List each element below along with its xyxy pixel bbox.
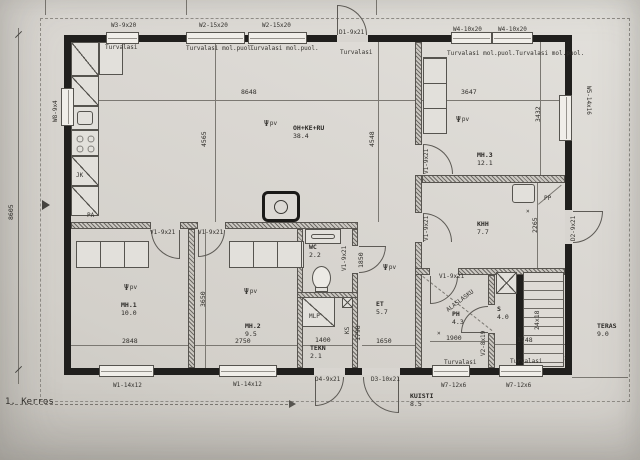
room-area: 4.3 (452, 318, 464, 326)
room-name: TEKN (310, 344, 326, 352)
smoke-detector-label: pv (130, 285, 137, 291)
room-name: KHH (477, 220, 489, 228)
safety-glass-label: Turvalasi (444, 359, 477, 366)
room-label: TERAS9.0 (597, 322, 617, 338)
washer-label: PP (544, 195, 551, 202)
room-area: 12.1 (477, 159, 493, 167)
floor-plan-photo: 1. Kerros OH+KE+RU38.4MH.312.1KHH7.7MH.1… (0, 0, 640, 460)
partition-wall (415, 242, 422, 368)
room-name: OH+KE+RU (293, 124, 324, 132)
room-label: WC2.2 (309, 243, 321, 259)
stove-cooktop (71, 130, 99, 156)
smoke-detector-icon: Ψ (456, 116, 461, 123)
safety-glass-label: Turvalasi mol.puol. (250, 45, 319, 52)
partition-wall (188, 229, 195, 368)
opening-label: W5-14x16 (585, 86, 592, 115)
opening-label: W4-10x20 (453, 26, 482, 33)
window-w8 (61, 88, 74, 126)
opening-label: W2-15x20 (262, 22, 291, 29)
exterior-wall-left (64, 35, 71, 375)
freezer (71, 186, 99, 216)
opening-label: V1-9x21 (439, 273, 464, 280)
room-label: ET5.7 (376, 300, 388, 316)
window-w7 (499, 365, 543, 377)
smoke-detector-marker: Ψpv (124, 284, 137, 291)
fridge (71, 156, 99, 186)
opening-label: V1-9x21 (423, 216, 430, 241)
opening-label: D1-9x21 (339, 29, 364, 36)
window-w4 (492, 32, 533, 44)
dim-line (378, 42, 379, 222)
kitchen-sink (71, 106, 99, 130)
entry-arrow (289, 400, 296, 408)
fireplace (262, 191, 300, 222)
opening-label: W7-12x6 (506, 382, 531, 389)
smoke-detector-label: pv (462, 117, 469, 123)
safety-glass-label: Turvalasi (105, 44, 138, 51)
door-opening (362, 368, 400, 375)
safety-glass-label: Turvalasi mol.puol. (186, 45, 255, 52)
smoke-detector-icon: Ψ (244, 288, 249, 295)
room-label: TEKN2.1 (310, 344, 326, 360)
smoke-detector-marker: Ψpv (456, 116, 469, 123)
smoke-detector-label: pv (270, 121, 277, 127)
smoke-detector-label: pv (389, 265, 396, 271)
room-label: S4.0 (497, 305, 509, 321)
opening-label: W4-10x20 (498, 26, 527, 33)
dimension-label: 1400 (315, 337, 331, 344)
staircase (523, 272, 564, 367)
dimension-label: 3432 (535, 106, 542, 122)
wardrobe-mh3 (423, 57, 447, 134)
dimension-label: 8648 (241, 89, 257, 96)
door-opening (314, 368, 345, 375)
window-w3 (106, 32, 139, 44)
dimension-label: 4548 (369, 131, 376, 147)
door-opening (337, 35, 368, 42)
exterior-wall-right (565, 35, 572, 375)
room-name: MH.3 (477, 151, 493, 159)
room-area: 2.1 (310, 352, 326, 360)
room-label: KUISTI8.5 (410, 392, 433, 408)
dimension-label: 1900 (446, 335, 462, 342)
room-label: MH.110.0 (121, 301, 137, 317)
partition-wall (71, 222, 151, 229)
dimension-label: 8605 (8, 204, 15, 220)
dimension-label: 2265 (532, 217, 539, 233)
partition-wall (352, 229, 358, 246)
safety-glass-label: Turvalasi mol.puol.Turvalasi mol.puol. (447, 50, 584, 57)
ceiling-valve-symbol: × (437, 330, 441, 337)
dimension-label: 1650 (376, 338, 392, 345)
sauna-stove (496, 272, 517, 294)
wardrobe-mh1 (76, 241, 149, 268)
safety-glass-label: Turvalasi (340, 49, 373, 56)
washing-machine (512, 184, 535, 203)
opening-label: D3-10x21 (371, 376, 400, 383)
room-area: 4.0 (497, 313, 509, 321)
ceiling-valve-symbol: × (526, 208, 530, 215)
room-label: PH4.3 (452, 310, 464, 326)
dimension-label: 1748 (517, 337, 533, 344)
dimension-label: 24x18 (534, 310, 541, 330)
room-name: ET (376, 300, 388, 308)
room-name: WC (309, 243, 321, 251)
dimension-label: 3647 (461, 89, 477, 96)
dimension-label: 3650 (200, 291, 207, 307)
opening-label: V1-9x21 (423, 149, 430, 174)
floor-title: 1. Kerros (5, 397, 54, 407)
partition-wall (225, 222, 358, 229)
smoke-detector-marker: Ψpv (244, 288, 257, 295)
partition-wall (415, 268, 430, 275)
opening-label: W2-15x20 (199, 22, 228, 29)
floor-plan: 1. Kerros OH+KE+RU38.4MH.312.1KHH7.7MH.1… (0, 0, 640, 460)
room-name: MH.1 (121, 301, 137, 309)
room-area: 7.7 (477, 228, 489, 236)
window-w1 (99, 365, 154, 377)
opening-label: V1-9x21 (198, 229, 223, 236)
room-name: TERAS (597, 322, 617, 330)
window-w4 (451, 32, 492, 44)
boiler-label: MLP (309, 313, 320, 320)
partition-wall (488, 275, 495, 305)
room-name: KUISTI (410, 392, 433, 400)
safety-glass-label: Turvalasi (510, 358, 543, 365)
freezer-label: PA (87, 212, 94, 219)
room-label: OH+KE+RU38.4 (293, 124, 324, 140)
room-name: MH.2 (245, 322, 261, 330)
terrace-edge (572, 377, 628, 378)
opening-label: V2-8x19 (480, 331, 487, 356)
partition-wall (352, 273, 358, 368)
room-area: 9.0 (597, 330, 617, 338)
smoke-detector-label: pv (250, 289, 257, 295)
smoke-detector-icon: Ψ (383, 264, 388, 271)
extension-line (376, 0, 377, 15)
smoke-detector-icon: Ψ (264, 120, 269, 127)
water-heater (302, 297, 335, 327)
opening-label: W3-9x20 (111, 22, 136, 29)
dim-line (215, 42, 216, 222)
drying-cabinet-label: KS (344, 327, 351, 334)
floor-drain (342, 297, 353, 308)
window-w7 (432, 365, 470, 377)
room-area: 8.5 (410, 400, 433, 408)
opening-label: V1-9x21 (341, 246, 348, 271)
toilet-tank (315, 287, 328, 292)
dim-line (362, 345, 415, 346)
smoke-detector-marker: Ψpv (264, 120, 277, 127)
kitchen-counter (71, 76, 99, 106)
opening-label: W1-14x12 (113, 382, 142, 389)
partition-wall (180, 222, 198, 229)
dimension-line-left (18, 28, 19, 384)
opening-label: D2-9x21 (570, 216, 577, 241)
room-area: 38.4 (293, 132, 324, 140)
room-area: 10.0 (121, 309, 137, 317)
partition-wall (415, 42, 422, 145)
window-w2 (186, 32, 245, 44)
window-w5 (559, 95, 572, 141)
fridge-label: JK (76, 172, 83, 179)
smoke-detector-icon: Ψ (124, 284, 129, 291)
opening-label: V1-9x21 (150, 229, 175, 236)
room-label: MH.29.5 (245, 322, 261, 338)
room-area: 5.7 (376, 308, 388, 316)
partition-wall (488, 333, 495, 368)
opening-label: D4-9x21 (315, 376, 340, 383)
window-w2 (248, 32, 307, 44)
opening-label: W8-9x4 (52, 100, 59, 122)
wardrobe-mh2 (229, 241, 304, 268)
room-name: S (497, 305, 509, 313)
section-marker (42, 200, 50, 210)
wc-sink (305, 229, 341, 244)
dimension-label: 1850 (358, 252, 365, 268)
opening-label: W1-14x12 (233, 381, 262, 388)
dimension-label: 2750 (235, 338, 251, 345)
room-label: MH.312.1 (477, 151, 493, 167)
room-area: 2.2 (309, 251, 321, 259)
window-w1 (219, 365, 277, 377)
extension-line (186, 0, 187, 15)
kitchen-corner-cabinet (71, 42, 99, 76)
room-label: KHH7.7 (477, 220, 489, 236)
smoke-detector-marker: Ψpv (383, 264, 396, 271)
stair-wall (516, 272, 523, 368)
dim-line (71, 100, 565, 101)
dimension-label: 2848 (122, 338, 138, 345)
dimension-label: 1798 (355, 325, 362, 341)
partition-wall (422, 175, 565, 183)
partition-wall (415, 175, 422, 213)
dimension-label: 4565 (201, 131, 208, 147)
extension-line (45, 0, 46, 15)
opening-label: W7-12x6 (441, 382, 466, 389)
room-name: PH (452, 310, 464, 318)
